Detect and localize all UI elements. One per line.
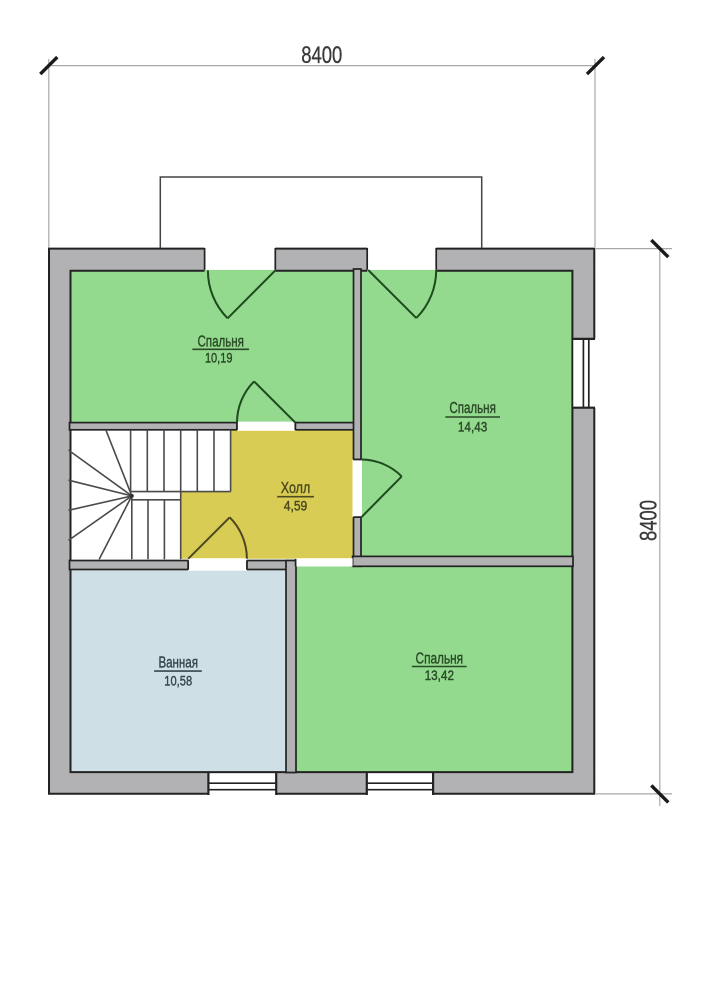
svg-text:Спальня: Спальня — [197, 334, 244, 351]
svg-text:Спальня: Спальня — [449, 400, 496, 417]
svg-text:8400: 8400 — [301, 42, 342, 69]
svg-text:Спальня: Спальня — [416, 650, 464, 667]
svg-text:8400: 8400 — [636, 500, 663, 541]
svg-text:Холл: Холл — [281, 480, 311, 497]
svg-text:10,58: 10,58 — [164, 672, 192, 688]
svg-text:10,19: 10,19 — [205, 350, 233, 366]
svg-text:13,42: 13,42 — [425, 667, 455, 683]
svg-text:14,43: 14,43 — [458, 419, 488, 435]
svg-text:Ванная: Ванная — [158, 655, 198, 672]
svg-text:4,59: 4,59 — [284, 498, 308, 514]
